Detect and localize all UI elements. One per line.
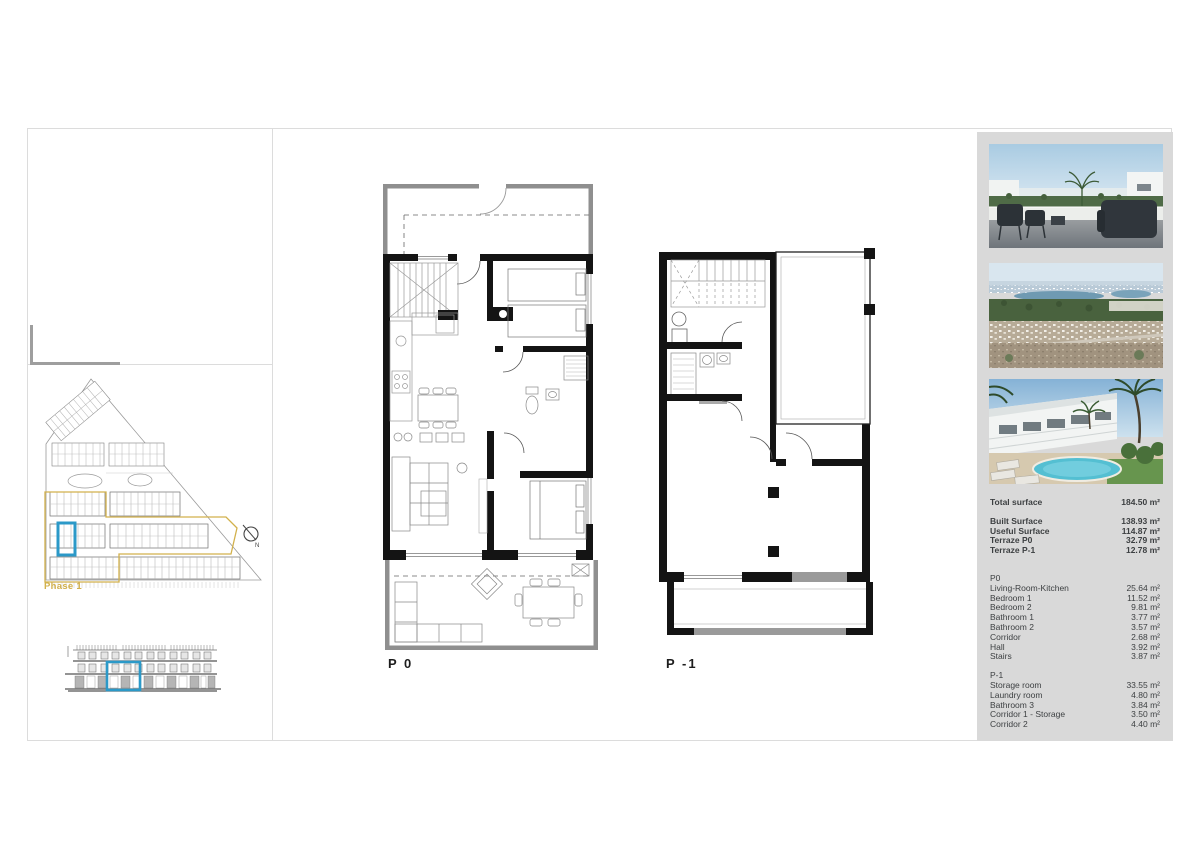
room-value: 4.40 m² xyxy=(1131,720,1160,730)
room-label: Stairs xyxy=(990,652,1012,662)
photo-aerial-coastline xyxy=(989,263,1163,368)
floor-plan-p1-drawing xyxy=(654,247,879,639)
document-page: N Phase 1 xyxy=(27,128,1172,741)
photos-summary-panel: Total surface 184.50 m² Built Surface 13… xyxy=(977,132,1173,741)
photo-roof-terrace xyxy=(989,144,1163,248)
p1-room-block: P-1 Storage room 33.55 m² Laundry room 4… xyxy=(990,671,1160,730)
surface-label: Total surface xyxy=(990,498,1042,508)
corner-mark-vertical xyxy=(30,325,33,365)
surface-block: Built Surface 138.93 m² Useful Surface 1… xyxy=(990,517,1160,556)
photo-residential-pool xyxy=(989,379,1163,484)
p0-room-block: P0 Living-Room-Kitchen 25.64 m² Bedroom … xyxy=(990,574,1160,662)
floor-plan-p0-label: P 0 xyxy=(388,656,413,671)
surface-value: 12.78 m² xyxy=(1126,546,1160,556)
floor-plan-p0-drawing xyxy=(380,179,602,657)
room-row: Stairs 3.87 m² xyxy=(990,652,1160,662)
room-value: 3.87 m² xyxy=(1131,652,1160,662)
corner-mark-horizontal xyxy=(30,362,120,365)
site-plan-drawing: N xyxy=(38,377,268,599)
surface-row: Terraze P-1 12.78 m² xyxy=(990,546,1160,556)
surface-value: 184.50 m² xyxy=(1121,498,1160,508)
north-label: N xyxy=(255,543,259,549)
room-row: Corridor 2 4.40 m² xyxy=(990,720,1160,730)
north-compass-icon: N xyxy=(243,525,259,549)
phase-1-label: Phase 1 xyxy=(44,581,82,592)
room-label: Corridor 2 xyxy=(990,720,1028,730)
column-divider xyxy=(272,129,273,740)
floor-plan-p1-label: P -1 xyxy=(666,656,698,671)
total-surface-row: Total surface 184.50 m² xyxy=(990,498,1160,508)
surface-label: Terraze P-1 xyxy=(990,546,1035,556)
page-background: N Phase 1 xyxy=(0,0,1200,849)
building-elevation-drawing xyxy=(65,643,229,695)
surface-summary-table: Total surface 184.50 m² Built Surface 13… xyxy=(990,498,1160,730)
